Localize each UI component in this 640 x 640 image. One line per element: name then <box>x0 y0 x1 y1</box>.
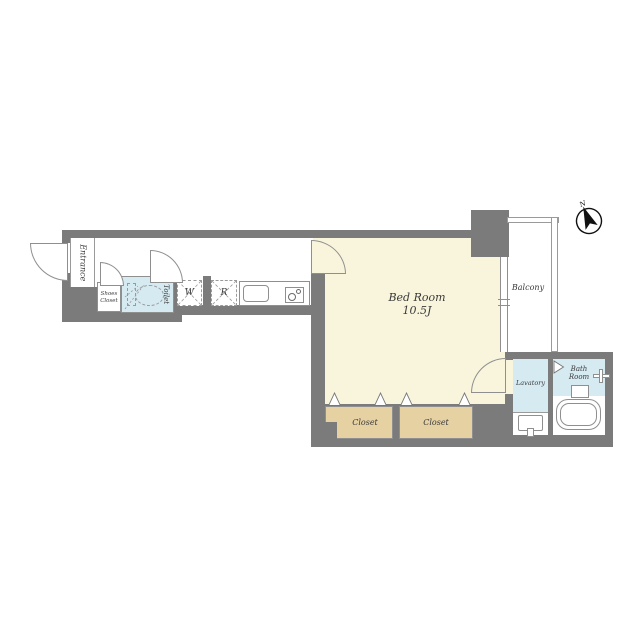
wall-top <box>62 230 474 238</box>
washer-label: W <box>177 280 202 306</box>
closet-door-triangle-2 <box>374 392 387 406</box>
bedroom-name: Bed Room <box>388 291 445 304</box>
stove-burner-large <box>288 293 296 301</box>
closet-door-triangle-4 <box>458 392 471 406</box>
closet-door-triangle-1 <box>328 392 341 406</box>
washbasin-tap <box>527 428 534 437</box>
closet-2-label: Closet <box>399 406 473 439</box>
bath-faucet-vertical <box>599 369 603 383</box>
entrance-door-arc <box>30 243 68 281</box>
wall-wr-divider <box>203 276 211 308</box>
bedroom-size: 10.5J <box>403 304 432 317</box>
bathroom-label: Bath Room <box>563 362 595 384</box>
closet-1-label: Closet <box>337 406 393 439</box>
wall-bath-bottom <box>505 435 613 447</box>
compass: N <box>571 200 607 238</box>
bath-counter <box>571 385 589 398</box>
entrance-label: Entrance <box>70 240 95 286</box>
bathtub-inner <box>560 403 597 426</box>
kitchen-sink <box>243 285 269 302</box>
closet-door-triangle-3 <box>400 392 413 406</box>
stove-burner-small <box>296 289 301 294</box>
window-tick-2 <box>498 305 510 306</box>
wall-bath-right <box>605 352 613 447</box>
compass-north-label: N <box>578 200 588 209</box>
floor-plan: Entrance Shoes Closet Toilet W R Bed Roo… <box>0 0 640 640</box>
balcony-label: Balcony <box>504 282 552 294</box>
wall-pillar <box>471 210 509 257</box>
refrigerator-label: R <box>211 280 237 306</box>
bedroom-label: Bed Room 10.5J <box>358 286 476 322</box>
wall-under-entrance <box>62 287 98 314</box>
lavatory-label: Lavatory <box>512 378 549 390</box>
window-tick-1 <box>498 299 510 300</box>
shoes-closet-label: Shoes Closet <box>97 287 121 309</box>
balcony-rail-side <box>551 217 558 352</box>
wall-bottom-west <box>62 312 182 322</box>
wall-bottom-kitchen <box>176 305 325 315</box>
closet-1-step <box>324 422 337 440</box>
